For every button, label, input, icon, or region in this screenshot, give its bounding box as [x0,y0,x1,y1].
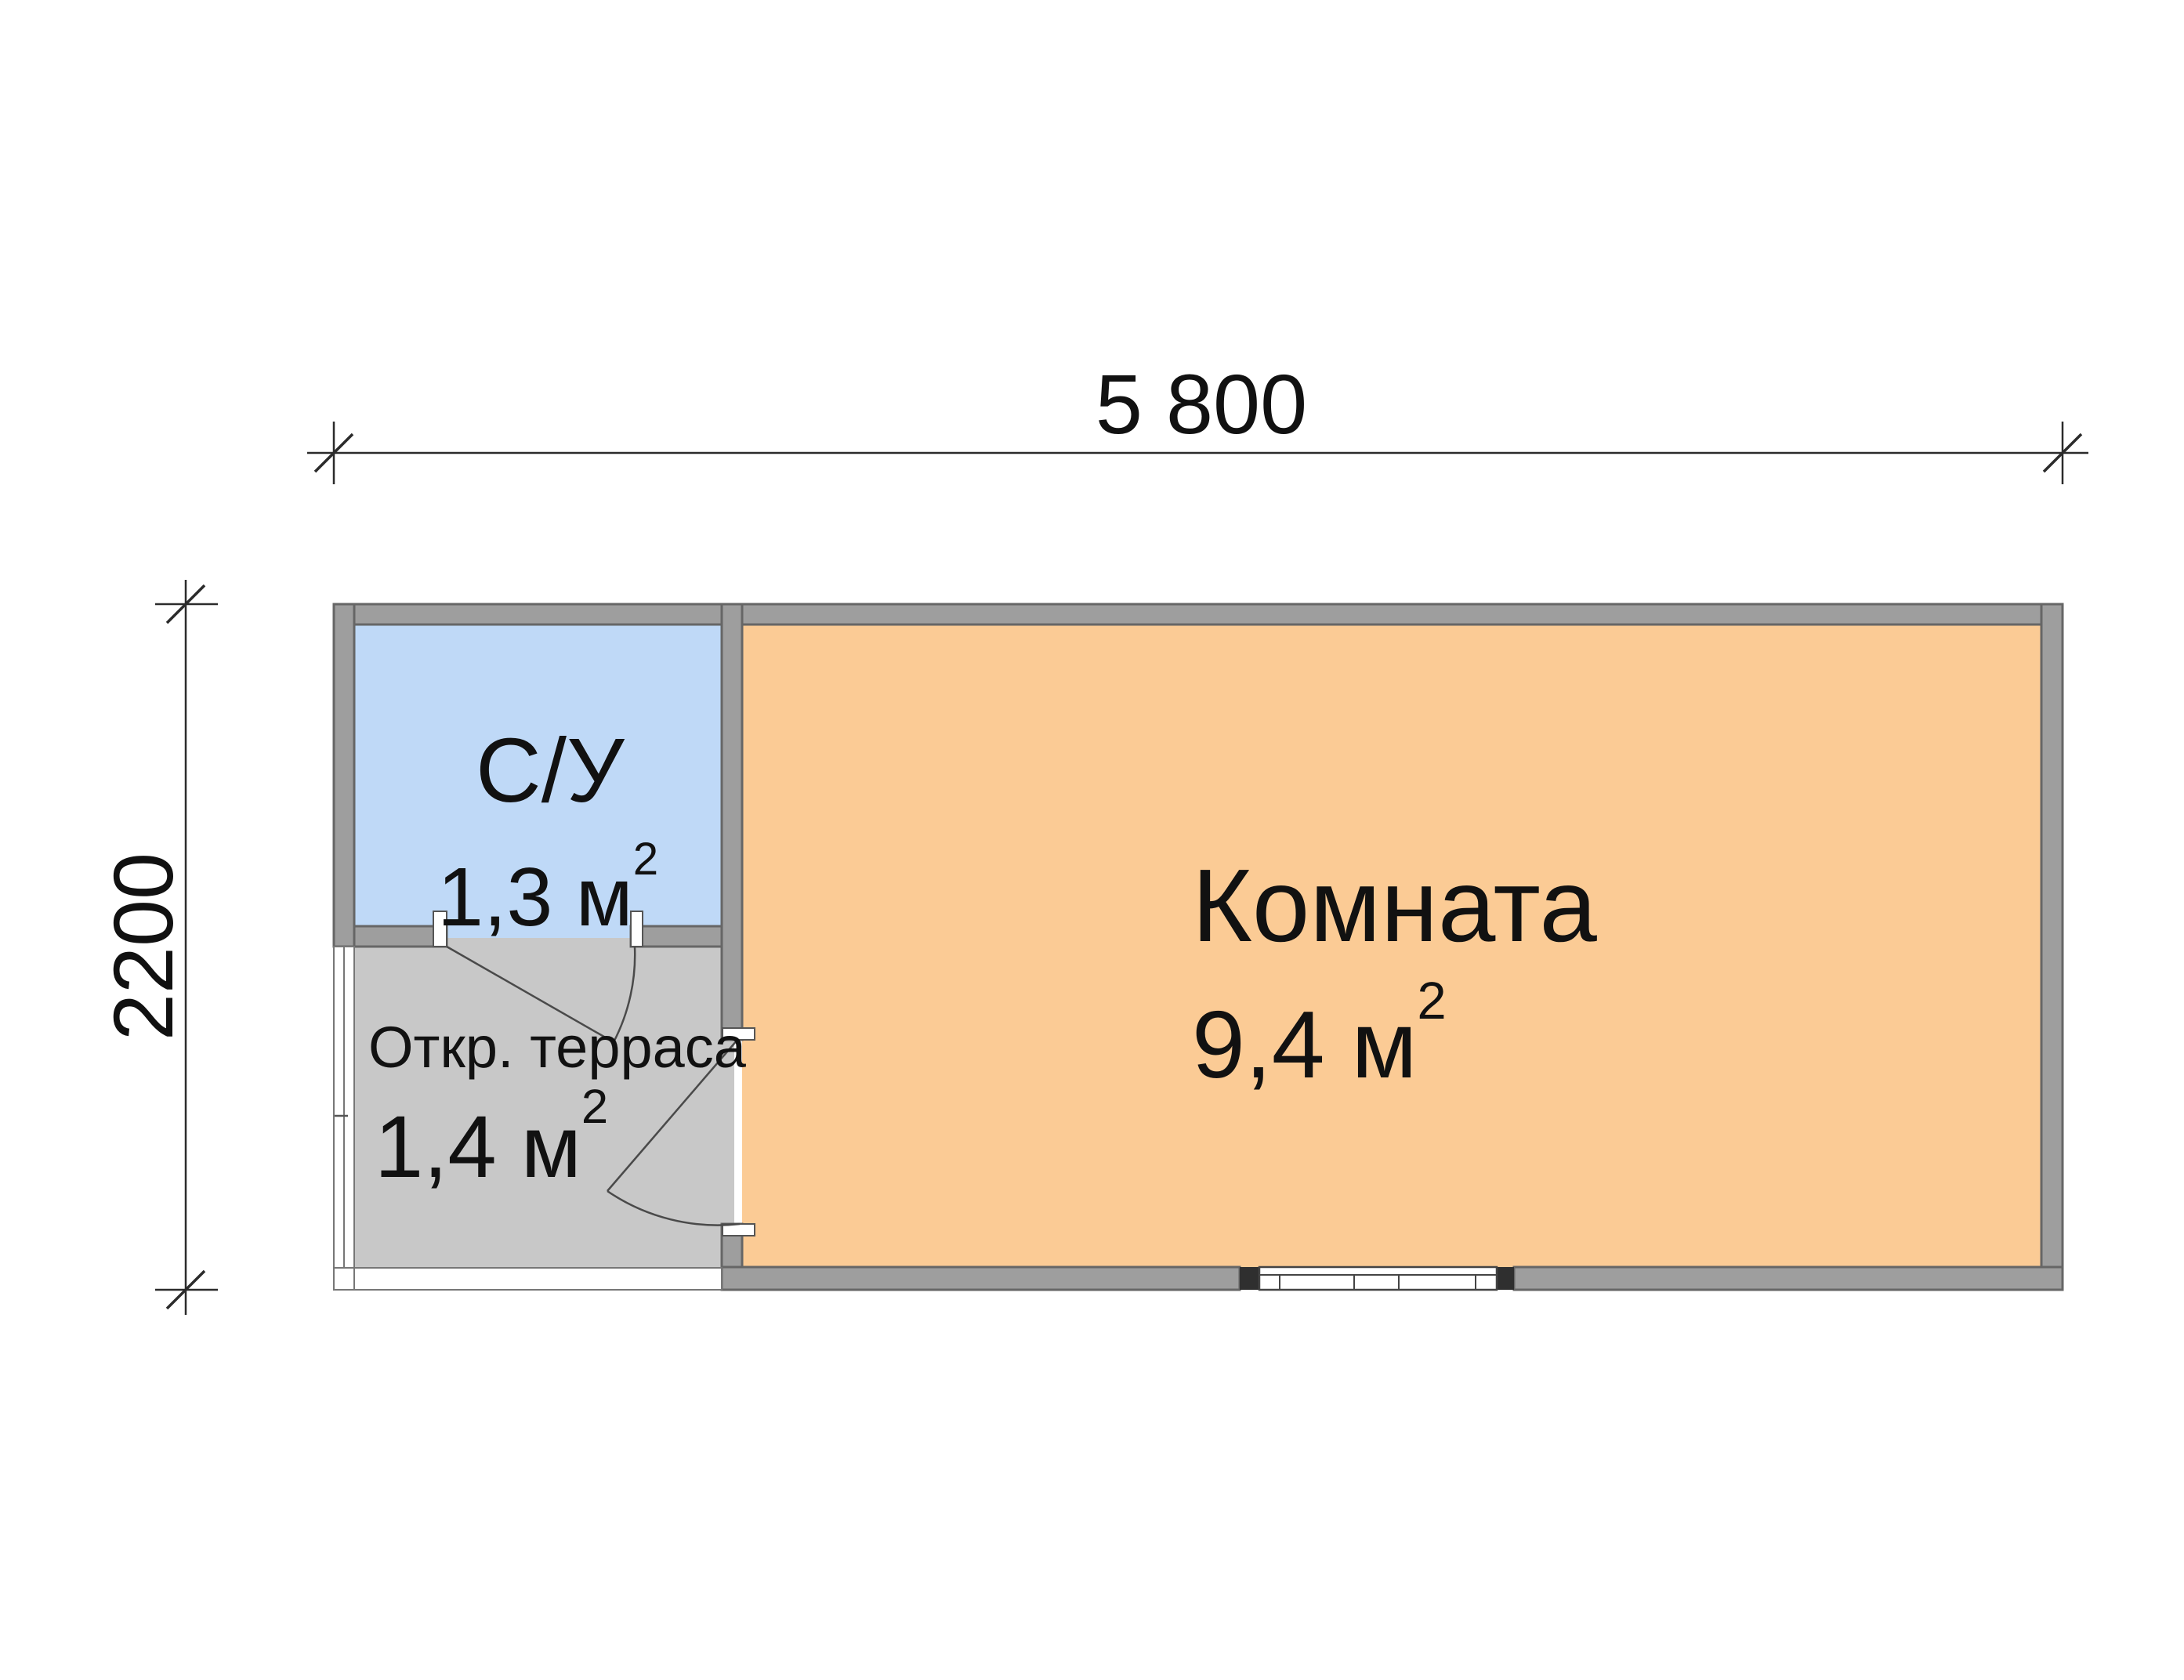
living-area-sup: 2 [1417,972,1446,1030]
bathroom-area-value: 1,3 м [437,851,633,943]
wall-east [2041,604,2063,1290]
terrace-open-edge-south [354,1268,722,1290]
terrace-area-value: 1,4 м [375,1098,581,1196]
window-cap-left [1240,1267,1259,1290]
dimension-height-label: 2200 [101,853,186,1041]
wall-west [334,604,354,947]
floor-plan-drawing [0,0,2184,1680]
bathroom-area-label: 1,3 м2 [437,856,658,939]
wall-south-right [1514,1267,2063,1290]
wall-north [334,604,2063,625]
window-frame [1259,1267,1497,1290]
terrace-area-label: 1,4 м2 [375,1103,608,1191]
terrace-room-label: Откр. терраса [368,1019,746,1077]
window-cap-right [1497,1267,1514,1290]
wall-divider-upper [722,604,742,1040]
dimension-width-label: 5 800 [1096,362,1307,447]
bathroom-area-sup: 2 [633,834,658,885]
wall-south-left [722,1267,1240,1290]
terrace-area-sup: 2 [581,1080,608,1134]
living-area-value: 9,4 м [1192,991,1417,1098]
bathroom-room-label: С/У [476,725,625,816]
floor-plan: 5 800 2200 С/У 1,3 м2 Откр. терраса 1,4 … [0,0,2184,1680]
living-room-label: Комната [1192,854,1597,958]
living-area-label: 9,4 м2 [1192,997,1447,1092]
